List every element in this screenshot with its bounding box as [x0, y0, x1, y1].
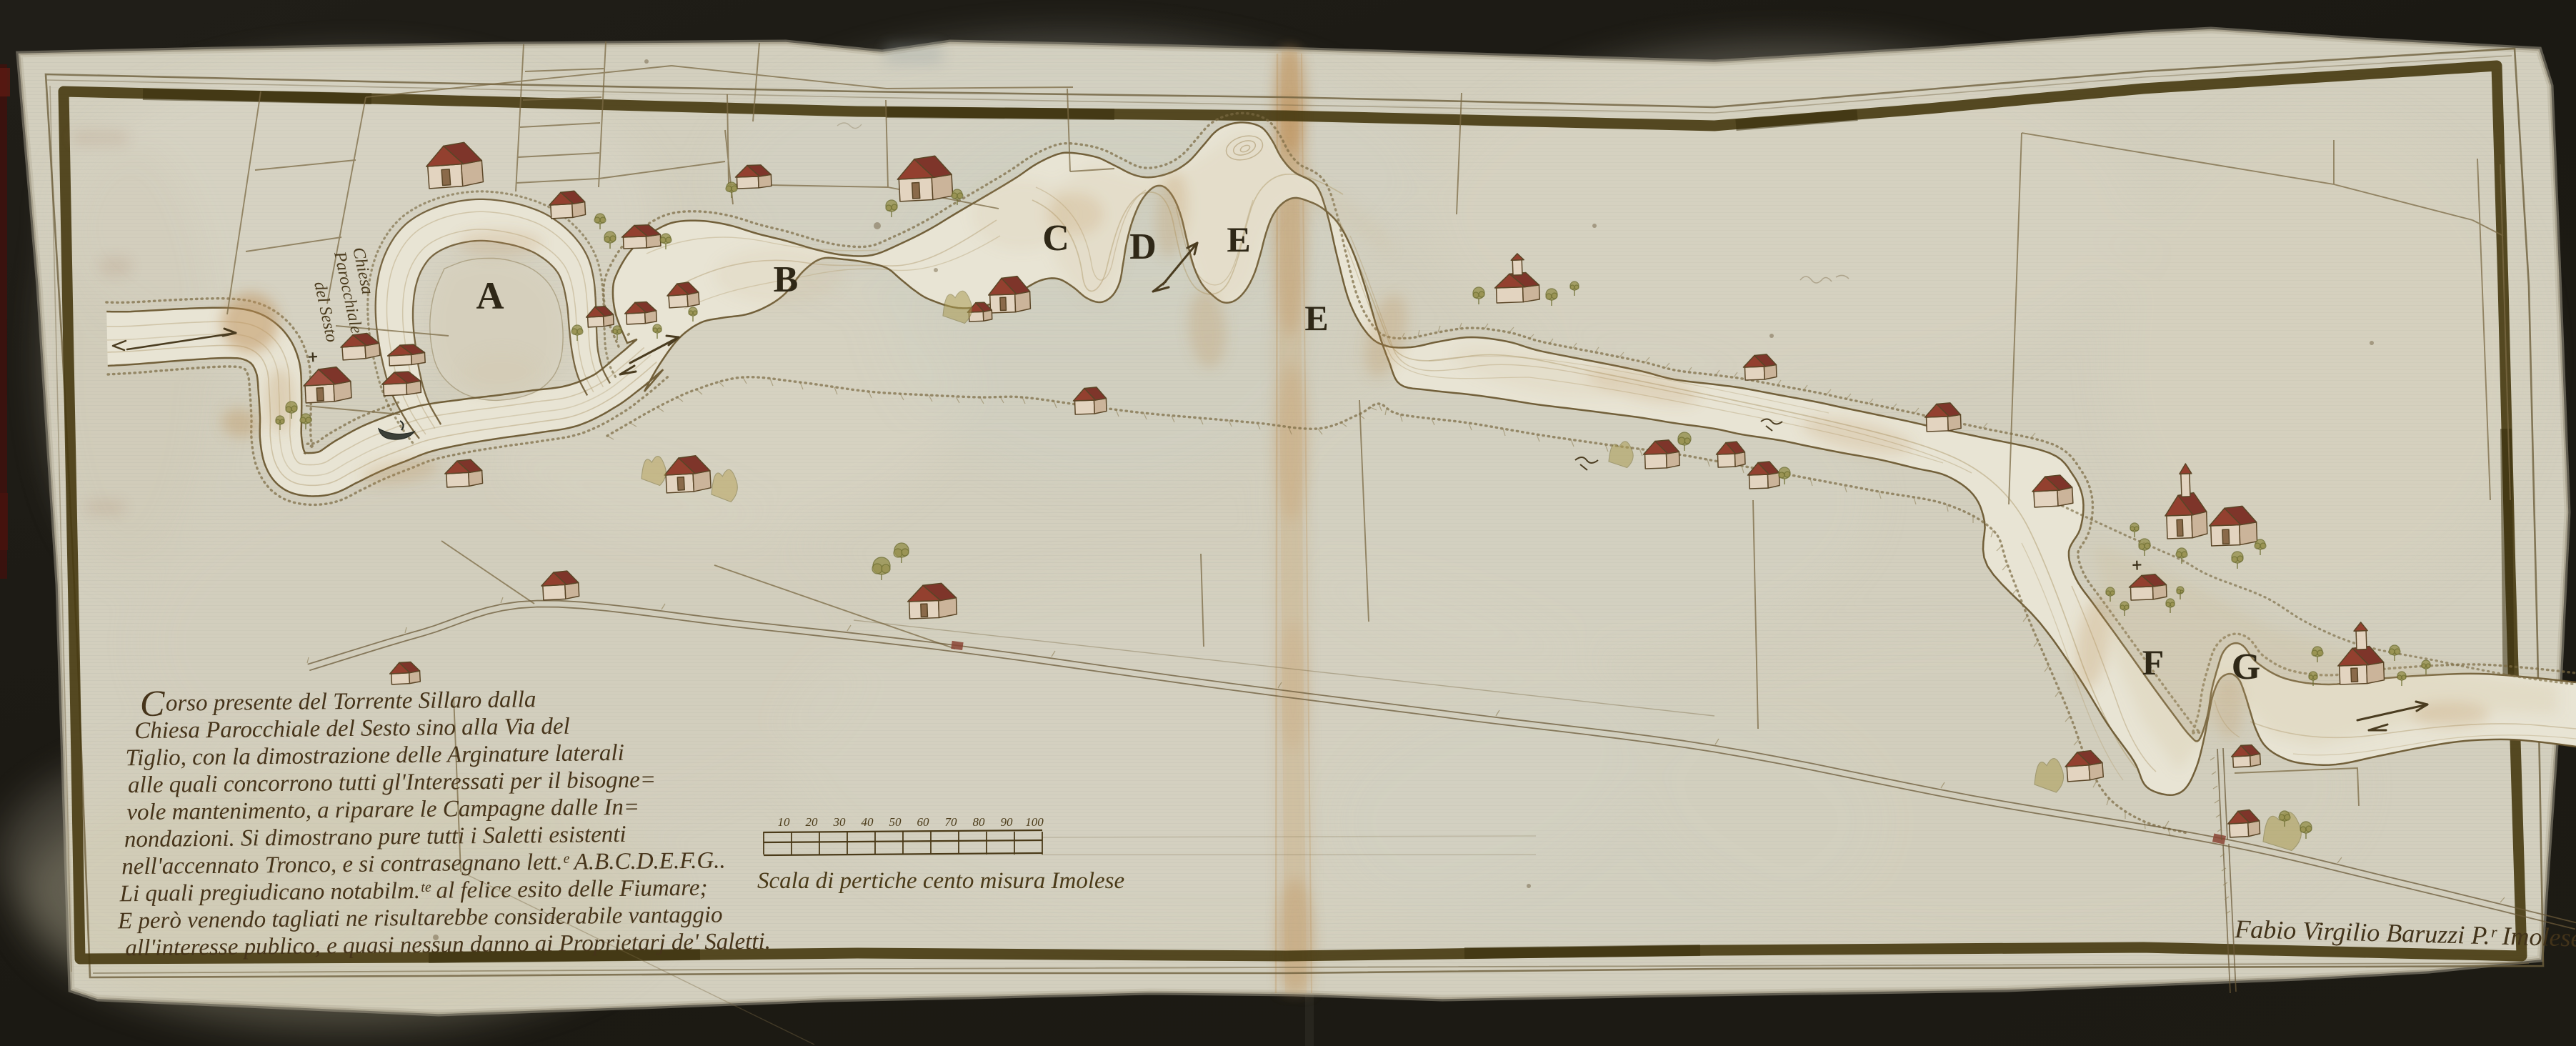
svg-text:90: 90: [1001, 815, 1014, 829]
svg-text:G: G: [2232, 647, 2260, 687]
svg-text:70: 70: [945, 815, 958, 829]
svg-text:60: 60: [917, 815, 930, 829]
svg-text:100: 100: [1025, 815, 1044, 829]
svg-text:E: E: [1304, 298, 1328, 338]
svg-text:50: 50: [889, 815, 902, 829]
svg-text:Tiglio, con la dimostrazione d: Tiglio, con la dimostrazione delle Argin…: [125, 740, 624, 771]
svg-text:A: A: [476, 274, 504, 317]
svg-text:10: 10: [778, 815, 791, 829]
svg-text:Scala di pertiche cento misura: Scala di pertiche cento misura Imolese: [757, 868, 1124, 894]
svg-text:40: 40: [862, 815, 874, 829]
svg-text:30: 30: [833, 815, 847, 829]
svg-text:nondazioni. Si dimostrano pure: nondazioni. Si dimostrano pure tutti i S…: [124, 822, 626, 852]
svg-text:B: B: [774, 259, 799, 300]
svg-text:E: E: [1227, 219, 1250, 259]
svg-text:orso presente del Torrente Sil: orso presente del Torrente Sillaro dalla: [166, 687, 536, 716]
svg-text:D: D: [1129, 226, 1157, 267]
svg-text:80: 80: [973, 815, 986, 829]
svg-text:F: F: [2142, 642, 2165, 682]
svg-text:20: 20: [806, 815, 819, 829]
svg-text:vole mantenimento, a riparare: vole mantenimento, a riparare le Campagn…: [126, 795, 639, 826]
svg-text:C: C: [1042, 218, 1069, 259]
svg-text:Chiesa Parocchiale del Sesto s: Chiesa Parocchiale del Sesto sino alla V…: [134, 714, 570, 744]
